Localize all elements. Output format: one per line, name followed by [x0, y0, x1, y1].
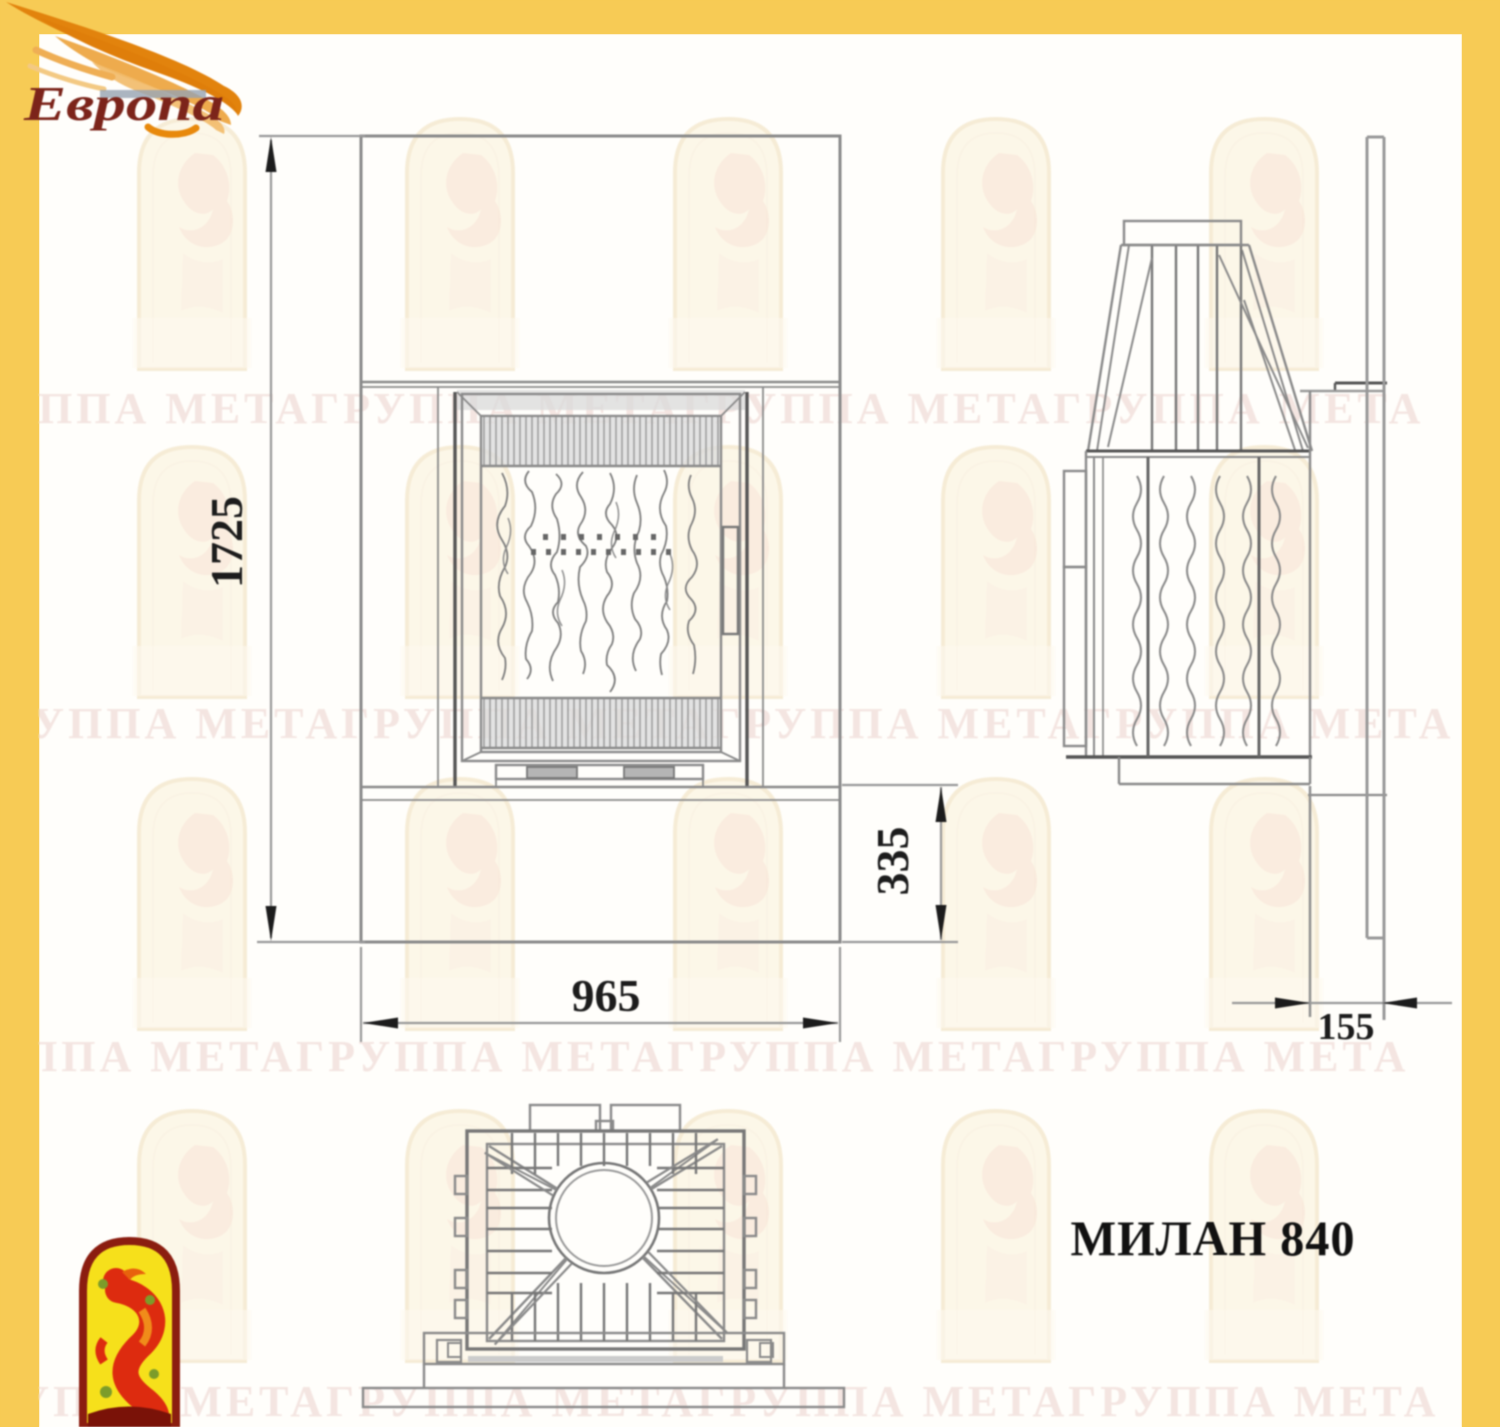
svg-text:ГРУППА МЕТАГРУППА МЕТАГРУППА М: ГРУППА МЕТАГРУППА МЕТАГРУППА МЕТАГРУППА …	[0, 1377, 1439, 1426]
svg-text:ГРУППА МЕТАГРУППА МЕТАГРУППА М: ГРУППА МЕТАГРУППА МЕТАГРУППА МЕТАГРУППА …	[0, 699, 1454, 748]
svg-text:МИЛАН 840: МИЛАН 840	[1071, 1210, 1356, 1266]
svg-text:1725: 1725	[201, 496, 252, 588]
svg-text:335: 335	[867, 827, 918, 896]
svg-text:965: 965	[572, 970, 641, 1021]
svg-text:155: 155	[1318, 1006, 1375, 1048]
svg-text:Европа: Европа	[23, 76, 224, 131]
svg-text:ГРУППА МЕТАГРУППА МЕТАГРУППА М: ГРУППА МЕТАГРУППА МЕТАГРУППА МЕТАГРУППА …	[0, 1032, 1409, 1081]
